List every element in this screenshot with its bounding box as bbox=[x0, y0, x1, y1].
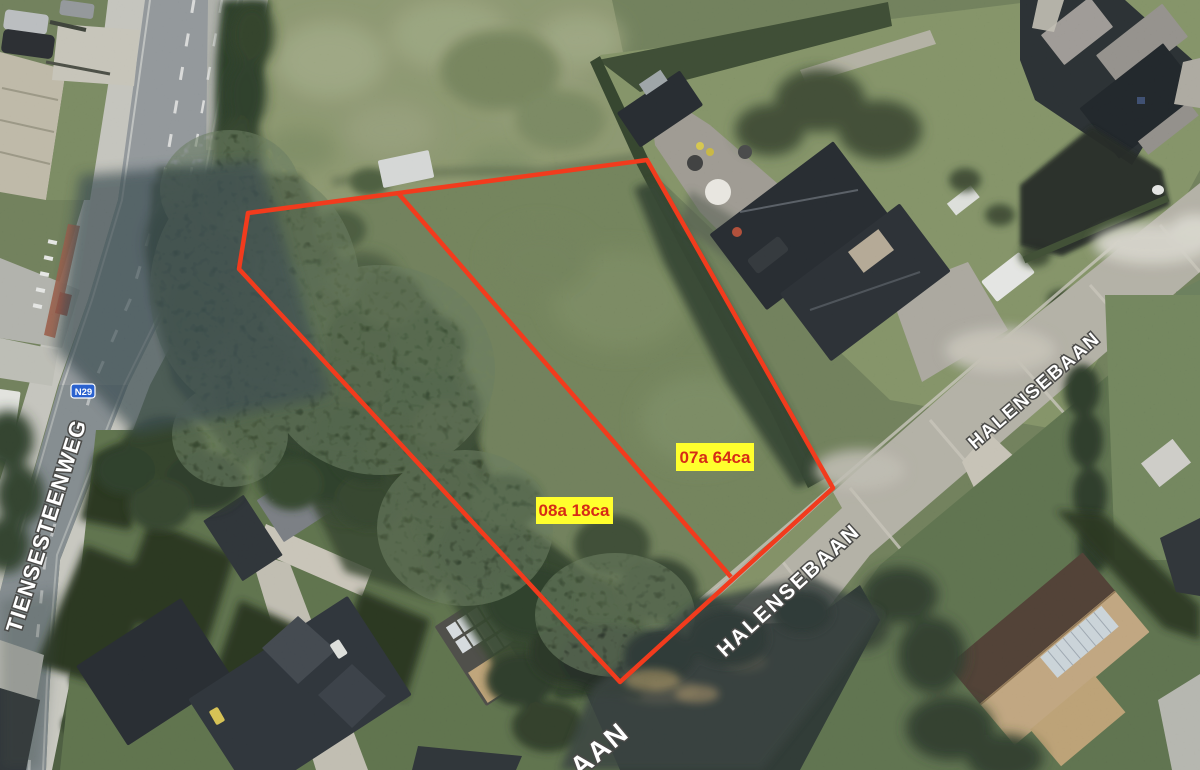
svg-text:N29: N29 bbox=[75, 387, 92, 398]
svg-text:07a 64ca: 07a 64ca bbox=[680, 448, 751, 467]
svg-text:08a 18ca: 08a 18ca bbox=[539, 501, 610, 520]
